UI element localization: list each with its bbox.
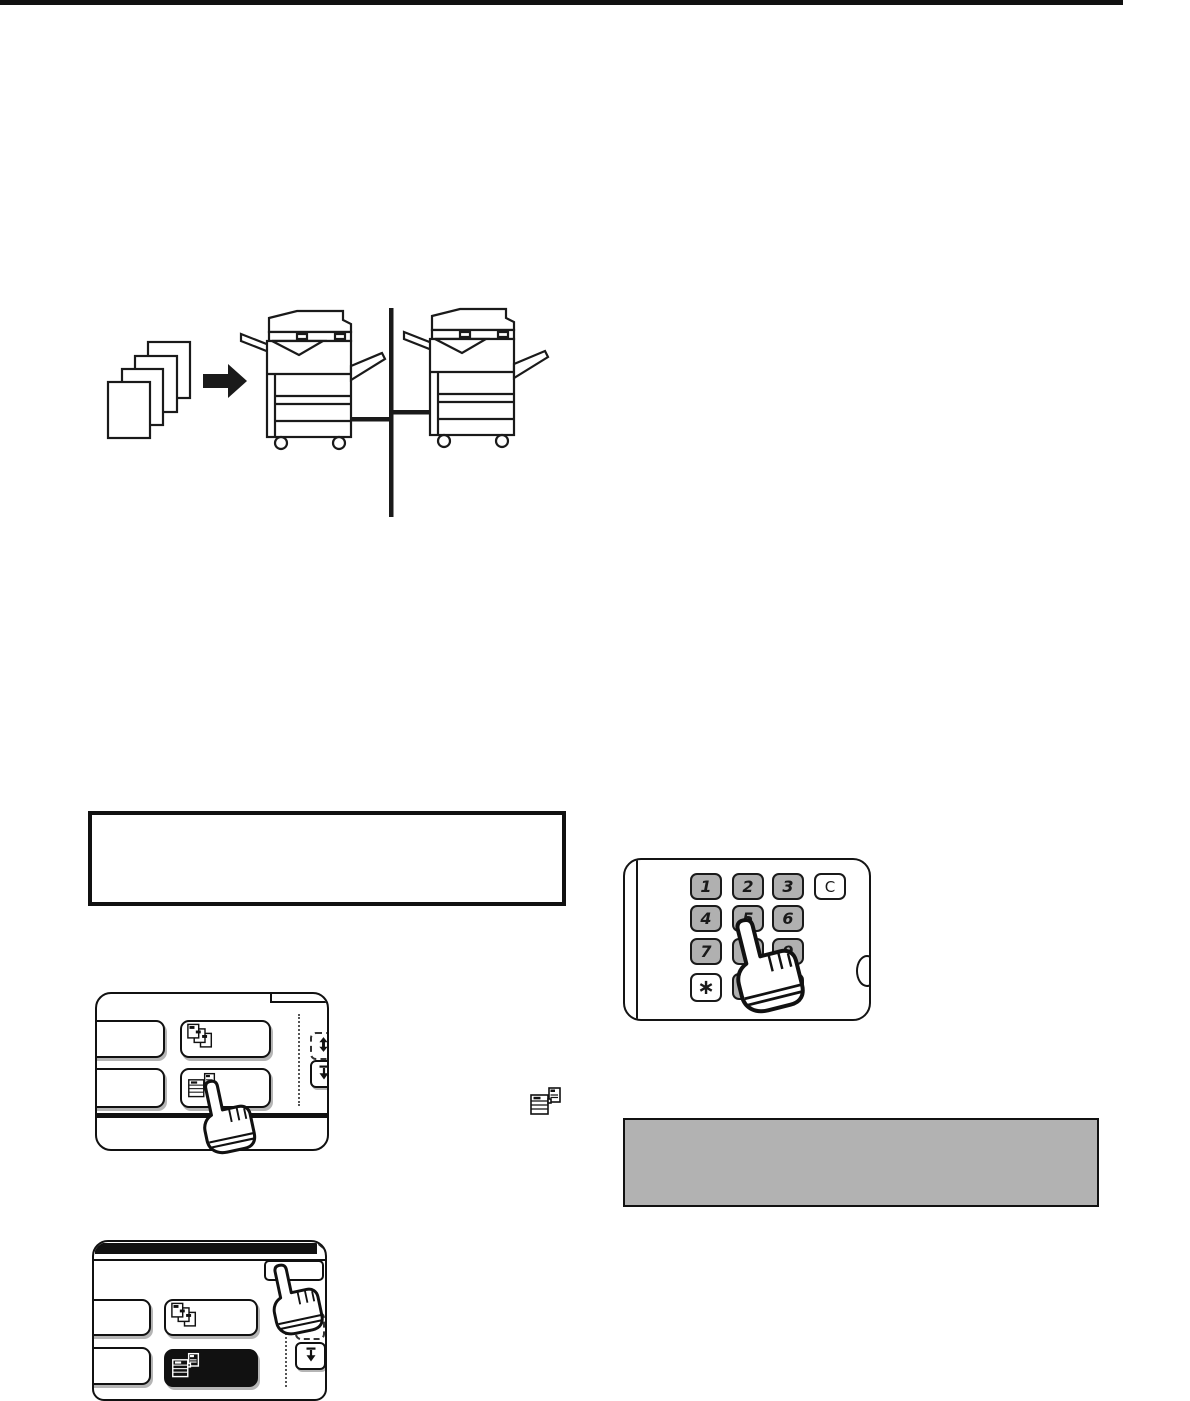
document-stack-button[interactable] — [180, 1020, 271, 1058]
key-2[interactable]: 2 — [732, 873, 764, 900]
page-top-rule — [0, 0, 1123, 5]
key-8[interactable]: 8 — [732, 938, 764, 965]
blank-button-2[interactable] — [92, 1347, 151, 1385]
key-6[interactable]: 6 — [772, 905, 804, 932]
key-0[interactable]: 0 — [732, 973, 764, 1000]
asterisk-key[interactable]: ∗ — [690, 973, 722, 1002]
keypad-side-notch — [856, 955, 871, 987]
key-4[interactable]: 4 — [690, 905, 722, 932]
scroll-down-button[interactable] — [310, 1060, 329, 1088]
scroll-display-button[interactable] — [310, 1032, 329, 1060]
panel-corner-tab — [270, 993, 326, 1003]
scroll-down-button[interactable] — [295, 1342, 326, 1370]
document-stack-icon — [187, 1023, 214, 1055]
copier-button-selected[interactable] — [164, 1349, 258, 1387]
panel-header-notch — [318, 1242, 327, 1250]
blank-button-1[interactable] — [95, 1020, 165, 1058]
key-3[interactable]: 3 — [772, 873, 804, 900]
panel-header-bar — [95, 1243, 317, 1254]
hash-p-key[interactable]: #/P — [772, 973, 804, 1000]
copier-icon — [171, 1353, 201, 1384]
copy-network-diagram — [100, 300, 570, 530]
touch-panel-screen-1 — [95, 992, 329, 1151]
keypad-edge-line — [636, 860, 638, 1019]
blank-button-1[interactable] — [92, 1299, 151, 1336]
copier-inline-icon — [527, 1087, 565, 1121]
scroll-display-icon — [318, 1037, 329, 1056]
top-right-button[interactable] — [264, 1260, 324, 1281]
highlight-box — [623, 1118, 1099, 1207]
copier-machine-right — [404, 309, 548, 447]
original-sheets-stack — [108, 342, 190, 438]
panel-divider — [298, 1014, 300, 1106]
copier-icon — [187, 1073, 217, 1104]
touch-panel-screen-2 — [92, 1240, 327, 1401]
scroll-display-icon — [305, 1317, 316, 1336]
key-7[interactable]: 7 — [690, 938, 722, 965]
copier-button[interactable] — [180, 1068, 271, 1108]
document-stack-icon — [171, 1302, 198, 1334]
copier-machine-left — [241, 311, 385, 449]
note-box — [88, 811, 566, 906]
panel-bottom-rule — [97, 1113, 327, 1118]
numeric-keypad: 1 2 3 C 4 5 6 7 8 9 ∗ 0 #/P — [623, 858, 871, 1021]
down-arrow-icon — [305, 1347, 317, 1366]
key-5[interactable]: 5 — [732, 905, 764, 932]
down-arrow-icon — [318, 1065, 330, 1084]
key-1[interactable]: 1 — [690, 873, 722, 900]
right-arrow-icon — [203, 364, 247, 398]
clear-key[interactable]: C — [814, 873, 846, 900]
key-9[interactable]: 9 — [772, 938, 804, 965]
scroll-display-button[interactable] — [295, 1312, 325, 1340]
blank-button-2[interactable] — [95, 1068, 165, 1108]
document-stack-button[interactable] — [164, 1299, 258, 1336]
panel-divider — [285, 1286, 287, 1387]
